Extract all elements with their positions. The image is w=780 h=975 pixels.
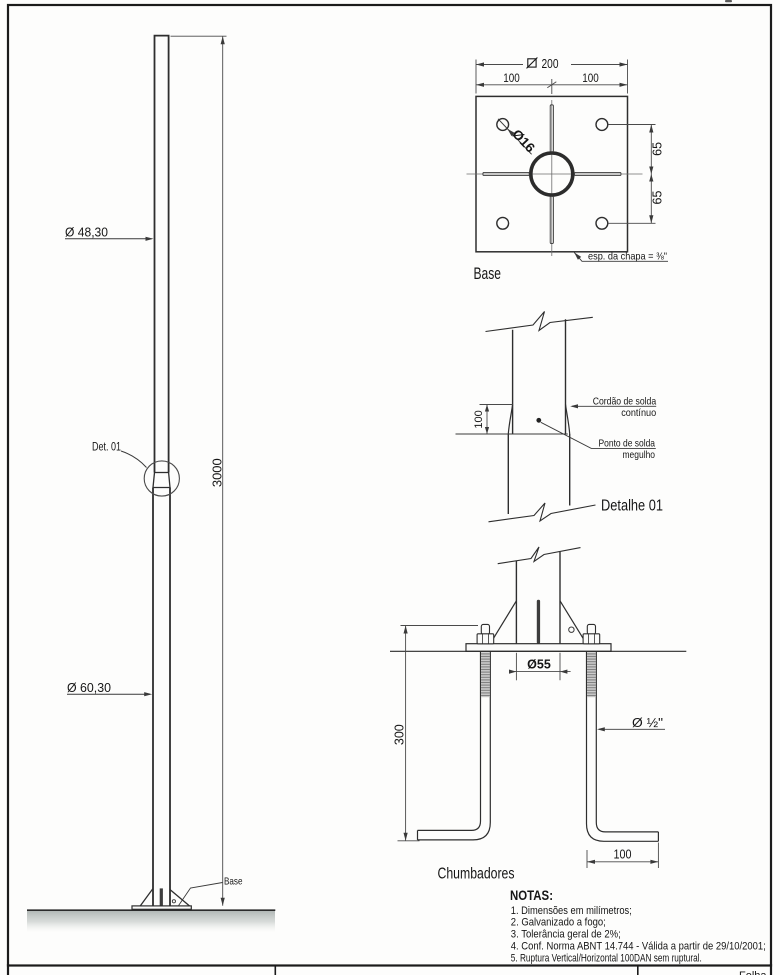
svg-text:Ø 60,30: Ø 60,30	[67, 680, 111, 695]
svg-text:contínuo: contínuo	[621, 407, 656, 419]
svg-text:300: 300	[393, 724, 407, 745]
svg-text:4. Conf. Norma ABNT 14.744 - V: 4. Conf. Norma ABNT 14.744 - Válida a pa…	[511, 941, 766, 953]
svg-text:Base: Base	[474, 264, 502, 283]
svg-text:Ø 48,30: Ø 48,30	[65, 225, 108, 240]
svg-text:NOTAS:: NOTAS:	[510, 887, 553, 903]
svg-text:100: 100	[614, 848, 632, 862]
svg-text:Base: Base	[224, 876, 243, 888]
svg-text:Ponto de solda: Ponto de solda	[599, 438, 656, 450]
svg-text:65: 65	[651, 191, 665, 205]
svg-text:Ø ½": Ø ½"	[632, 716, 663, 730]
svg-text:2. Galvanizado a fogo;: 2. Galvanizado a fogo;	[511, 917, 606, 929]
svg-text:Chumbadores: Chumbadores	[438, 866, 515, 883]
svg-text:Detalhe 01: Detalhe 01	[601, 498, 663, 515]
svg-text:megulho: megulho	[623, 449, 656, 461]
svg-text:100: 100	[582, 71, 599, 85]
svg-text:esp. da chapa = ⅜": esp. da chapa = ⅜"	[588, 251, 667, 263]
svg-text:100: 100	[473, 410, 485, 428]
svg-text:200: 200	[542, 56, 559, 71]
svg-text:3. Tolerância geral de 2%;: 3. Tolerância geral de 2%;	[511, 928, 621, 940]
svg-text:Cordão de solda: Cordão de solda	[593, 395, 657, 407]
svg-text:65: 65	[651, 142, 665, 156]
svg-text:Folha: Folha	[739, 970, 767, 975]
svg-text:Det. 01: Det. 01	[92, 442, 121, 454]
svg-text:1. Dimensões em milímetros;: 1. Dimensões em milímetros;	[511, 905, 632, 917]
svg-text:Ø55: Ø55	[527, 658, 551, 672]
svg-text:5. Ruptura Vertical/Horizontal: 5. Ruptura Vertical/Horizontal 100DAN se…	[511, 953, 702, 965]
svg-text:3000: 3000	[209, 458, 224, 487]
svg-text:100: 100	[503, 71, 520, 85]
